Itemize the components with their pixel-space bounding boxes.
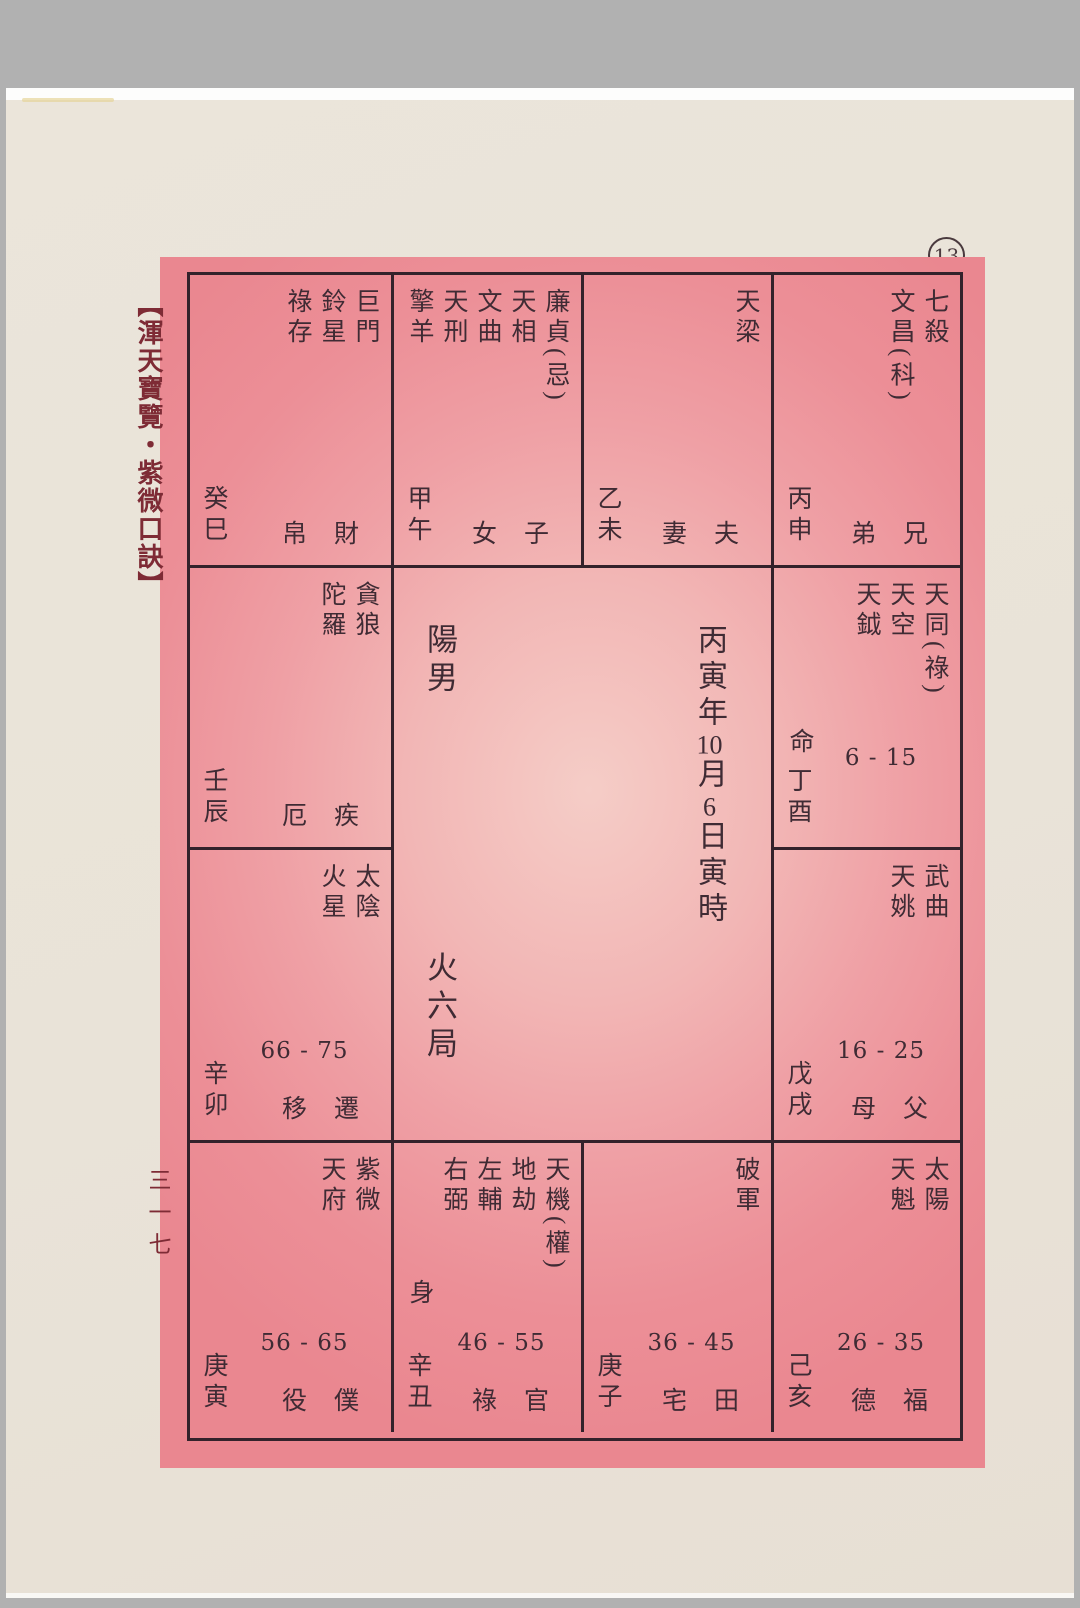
branch-label: 戊戌	[785, 1060, 810, 1122]
palace-char: 移	[282, 1097, 307, 1122]
star-list: 巨門 鈴星 祿存	[276, 288, 378, 348]
natal-chart-sheet: 巨門 鈴星 祿存 癸巳 財 帛 廉貞(忌) 天相 文曲 天刑 擎羊 甲午 子 女	[160, 257, 985, 1468]
palace-char: 財	[334, 522, 359, 547]
star: 擎羊	[407, 288, 432, 405]
star: 武曲	[922, 863, 947, 923]
star: 天相	[509, 288, 534, 405]
palace-name: 僕 役	[282, 1389, 359, 1414]
star: 地劫	[509, 1156, 534, 1273]
palace-char: 宅	[662, 1389, 687, 1414]
star: 文曲	[475, 288, 500, 405]
palace-char: 夫	[714, 522, 739, 547]
palace-char: 厄	[282, 804, 307, 829]
star: 太陰	[353, 863, 378, 923]
palace-name: 父 母	[851, 1097, 928, 1122]
palace-char: 兄	[903, 522, 928, 547]
star: 廉貞(忌)	[543, 288, 568, 405]
birth-day-number: 6	[695, 794, 724, 820]
paper-mark	[22, 98, 114, 102]
palace-cell-hai-fortune: 太陽 天魁 26 - 35 己亥 福 德	[774, 1143, 960, 1432]
palace-name: 疾 厄	[282, 804, 359, 829]
ziwei-chart-grid: 巨門 鈴星 祿存 癸巳 財 帛 廉貞(忌) 天相 文曲 天刑 擎羊 甲午 子 女	[187, 272, 963, 1441]
palace-cell-shen-siblings: 七殺 文昌(科) 丙申 兄 弟	[774, 275, 960, 568]
page-top-edge	[6, 88, 1074, 100]
birth-month-number: 10	[695, 732, 724, 758]
star: 右弼	[441, 1156, 466, 1273]
star: 天空	[888, 581, 913, 698]
star: 貪狼	[353, 581, 378, 641]
palace-cell-wu-children: 廉貞(忌) 天相 文曲 天刑 擎羊 甲午 子 女	[394, 275, 584, 568]
birth-datetime: 丙寅年10月6日寅時	[694, 624, 726, 928]
star: 天魁	[888, 1156, 913, 1216]
palace-char: 疾	[334, 804, 359, 829]
palace-cell-chen-health: 貪狼 陀羅 壬辰 疾 厄	[190, 568, 394, 850]
star-list: 太陽 天魁	[879, 1156, 947, 1216]
star-list: 武曲 天姚	[879, 863, 947, 923]
palace-char: 女	[472, 522, 497, 547]
palace-name: 兄 弟	[851, 522, 928, 547]
branch-label: 辛卯	[201, 1060, 226, 1122]
branch-label: 庚子	[595, 1352, 620, 1414]
palace-cell-zi-property: 破軍 36 - 45 庚子 田 宅	[584, 1143, 774, 1432]
birth-segment: 月	[693, 758, 726, 794]
palace-char: 役	[282, 1389, 307, 1414]
star: 文昌(科)	[888, 288, 913, 405]
palace-char: 僕	[334, 1389, 359, 1414]
palace-char: 官	[524, 1389, 549, 1414]
palace-name: 官 祿	[472, 1389, 549, 1414]
palace-cell-si-wealth: 巨門 鈴星 祿存 癸巳 財 帛	[190, 275, 394, 568]
page-bottom-edge	[6, 1593, 1074, 1598]
star: 左輔	[475, 1156, 500, 1273]
star: 太陽	[922, 1156, 947, 1216]
star: 天府	[319, 1156, 344, 1216]
book-side-title: 【渾天寶覽・紫微口訣】	[135, 291, 161, 599]
palace-char: 田	[714, 1389, 739, 1414]
palace-char: 德	[851, 1389, 876, 1414]
star: 鈴星	[319, 288, 344, 348]
star: 紫微	[353, 1156, 378, 1216]
star: 天刑	[441, 288, 466, 405]
palace-char: 弟	[851, 522, 876, 547]
palace-char: 帛	[282, 522, 307, 547]
palace-name: 夫 妻	[662, 522, 739, 547]
star: 巨門	[353, 288, 378, 348]
palace-cell-xu-parents: 武曲 天姚 16 - 25 戊戌 父 母	[774, 850, 960, 1143]
branch-label: 癸巳	[201, 485, 226, 547]
star: 天同(祿)	[922, 581, 947, 698]
palace-name: 福 德	[851, 1389, 928, 1414]
palace-cell-wei-spouse: 天梁 乙未 夫 妻	[584, 275, 774, 568]
palace-char: 福	[903, 1389, 928, 1414]
star: 祿存	[285, 288, 310, 348]
palace-cell-yin-friends: 紫微 天府 56 - 65 庚寅 僕 役	[190, 1143, 394, 1432]
star-list: 紫微 天府	[310, 1156, 378, 1216]
birth-segment: 丙寅年	[693, 624, 726, 732]
branch-label: 丁酉	[785, 767, 810, 829]
branch-label: 己亥	[785, 1352, 810, 1414]
chart-center-area: 陽男 丙寅年10月6日寅時 火六局	[394, 568, 774, 1143]
palace-name: 田 宅	[662, 1389, 739, 1414]
body-palace-marker: 身	[407, 1279, 432, 1304]
branch-label: 庚寅	[201, 1352, 226, 1414]
star: 天姚	[888, 863, 913, 923]
star-list: 破軍	[724, 1156, 758, 1216]
star-list: 七殺 文昌(科)	[879, 288, 947, 405]
branch-label: 乙未	[595, 485, 620, 547]
branch-label: 甲午	[405, 485, 430, 547]
folio-page-number: 三一七	[146, 1168, 169, 1264]
palace-char: 父	[903, 1097, 928, 1122]
birth-segment: 日寅時	[693, 820, 726, 928]
star-list: 廉貞(忌) 天相 文曲 天刑 擎羊	[398, 288, 568, 405]
palace-char: 妻	[662, 522, 687, 547]
palace-cell-mao-travel: 太陰 火星 66 - 75 辛卯 遷 移	[190, 850, 394, 1143]
branch-label: 壬辰	[201, 767, 226, 829]
palace-name: 財 帛	[282, 522, 359, 547]
star: 火星	[319, 863, 344, 923]
star: 陀羅	[319, 581, 344, 641]
star-list: 天同(祿) 天空 天鉞	[845, 581, 947, 698]
branch-label: 丙申	[785, 485, 810, 547]
palace-char: 祿	[472, 1389, 497, 1414]
palace-name: 子 女	[472, 522, 549, 547]
star: 破軍	[733, 1156, 758, 1216]
star-list: 貪狼 陀羅	[310, 581, 378, 641]
branch-label: 辛丑	[405, 1352, 430, 1414]
palace-cell-chou-career: 天機(權) 地劫 左輔 右弼 身 46 - 55 辛丑 官 祿	[394, 1143, 584, 1432]
palace-char: 母	[851, 1097, 876, 1122]
star: 天梁	[733, 288, 758, 348]
palace-char: 遷	[334, 1097, 359, 1122]
gender-label: 陽男	[424, 623, 455, 699]
star: 天機(權)	[543, 1156, 568, 1273]
palace-name: 遷 移	[282, 1097, 359, 1122]
star-list: 天機(權) 地劫 左輔 右弼	[432, 1156, 568, 1273]
palace-cell-you-life: 天同(祿) 天空 天鉞 命 6 - 15 丁酉	[774, 568, 960, 850]
star: 天鉞	[854, 581, 879, 698]
star: 七殺	[922, 288, 947, 405]
palace-char: 子	[524, 522, 549, 547]
element-bureau-label: 火六局	[424, 951, 455, 1065]
star-list: 天梁	[724, 288, 758, 348]
star-list: 太陰 火星	[310, 863, 378, 923]
